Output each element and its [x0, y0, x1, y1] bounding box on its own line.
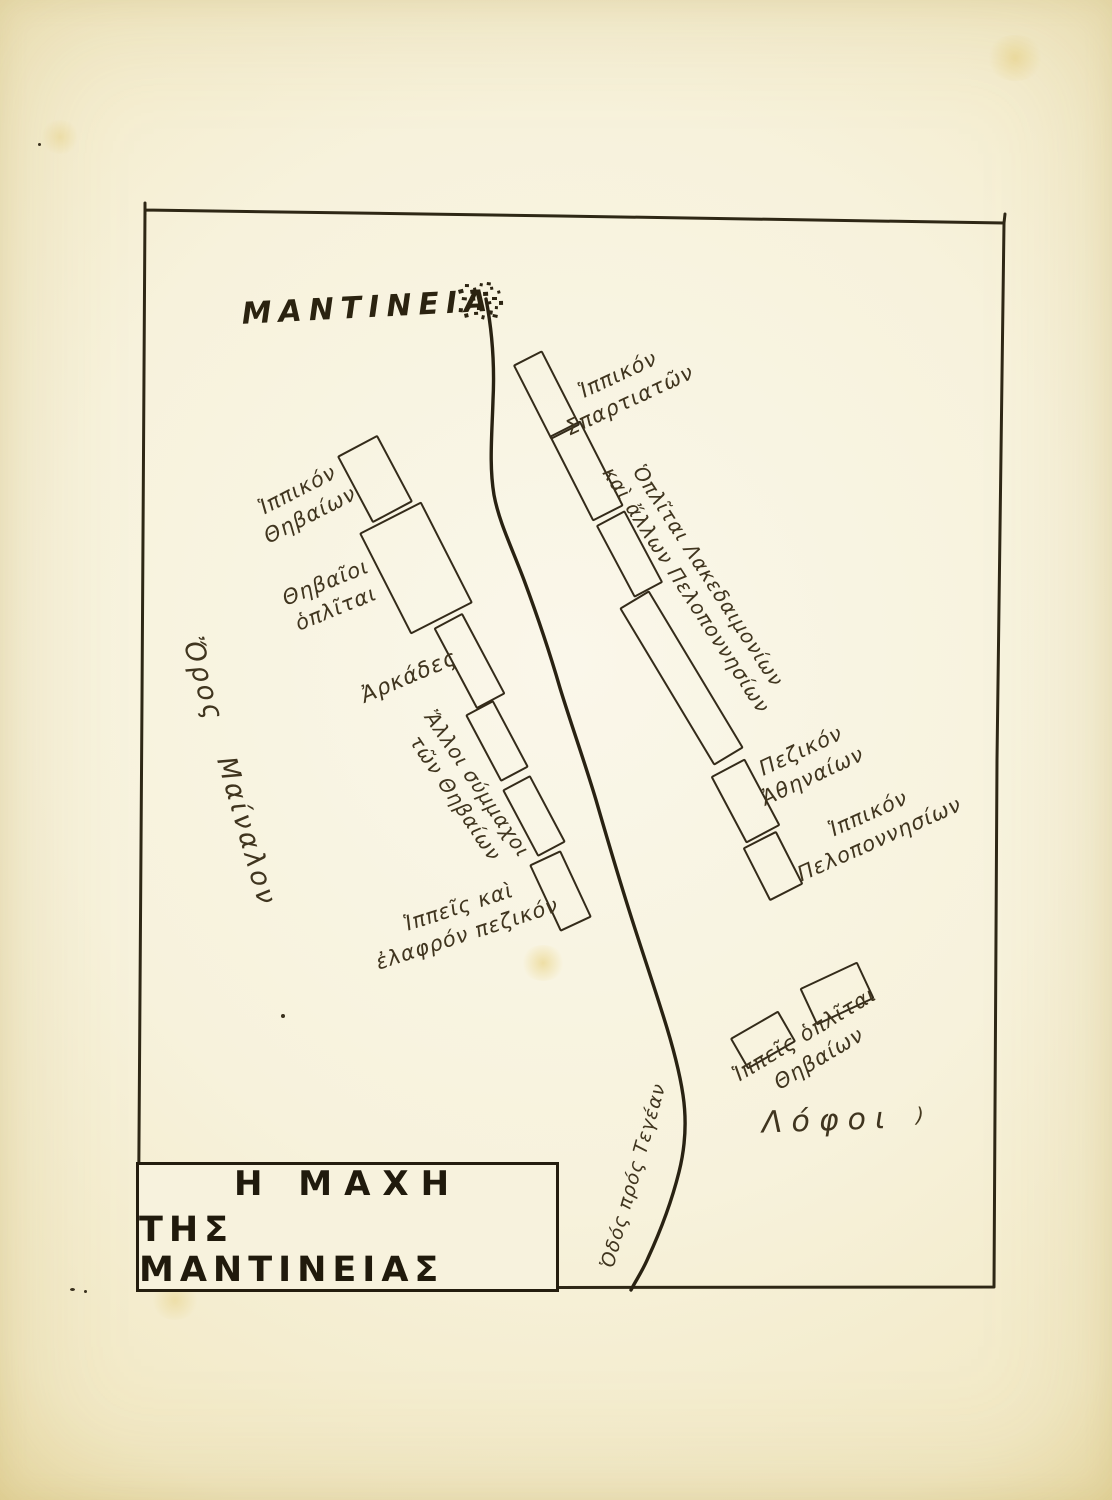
ink-speck — [281, 1014, 285, 1018]
hills-label: Λόφοι — [761, 1099, 894, 1143]
map-title-line2: ΤΗΣ ΜΑΝΤΙΝΕΙΑΣ — [139, 1210, 556, 1290]
ink-speck — [70, 1288, 75, 1291]
hills-label-line: Λόφοι — [761, 1099, 894, 1143]
ink-speck — [84, 1290, 87, 1293]
map-title-box: Η ΜΑΧΗ ΤΗΣ ΜΑΝΤΙΝΕΙΑΣ — [136, 1162, 559, 1292]
ink-mark: ) — [916, 1103, 924, 1127]
ink-speck — [38, 143, 41, 146]
scanned-page: { "page": { "kind": "hand-drawn battle m… — [0, 0, 1112, 1500]
map-title-line1: Η ΜΑΧΗ — [234, 1164, 461, 1204]
